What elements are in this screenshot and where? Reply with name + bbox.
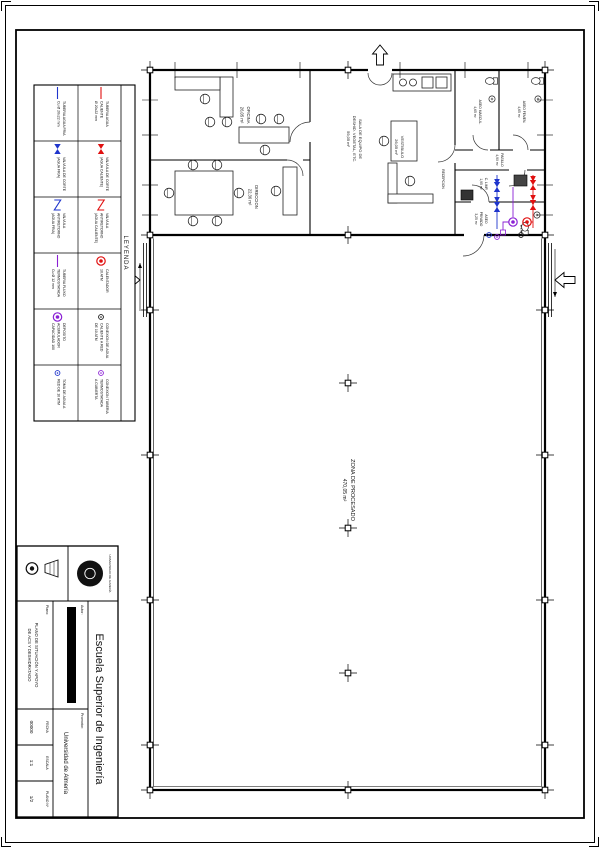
svg-text:Ø 20x22 mm: Ø 20x22 mm [94,101,98,121]
oficina-area: 26,05 m² [240,107,245,124]
chair-icon [164,188,174,198]
crop-mark [1,1,11,11]
chair-icon [188,160,198,170]
cold-valve-icon [494,202,500,212]
svg-text:CAPACIDAD 100: CAPACIDAD 100 [51,323,55,350]
promotor-name: Universidad de Almería [62,732,68,795]
svg-text:(AGUA CALIENTE): (AGUA CALIENTE) [100,157,104,187]
svg-text:TUBERIA FLUXO: TUBERIA FLUXO [62,269,66,297]
svg-text:CALIENTE: CALIENTE [100,101,104,119]
sliding-doors [138,243,557,317]
chair-icon [200,94,210,104]
sink-icon [489,96,495,102]
svg-text:10 ATM: 10 ATM [100,269,104,281]
accumulator-icon [509,218,517,226]
nave-area: 470,05 m² [341,479,347,502]
crop-mark [589,1,599,11]
hot-valve-icon [530,200,536,210]
aseo-fem-label: ASEO FEMEN. [522,101,526,124]
exit-arrow-icon [373,45,388,65]
chair-icon [188,216,198,226]
svg-text:A CUBIERTA: A CUBIERTA [94,379,98,400]
legend-title: LEYENDA [122,235,128,270]
sala-label: DESHID. VEGETAL, ETC. [352,116,357,163]
c-limp-area: 1,95 m² [479,178,483,190]
fecha-value: 00000 [29,721,34,734]
svg-text:(AGUA FRIA): (AGUA FRIA) [51,213,55,234]
hot-flow-arrow-icon [530,195,536,201]
plano-num-value: 1/2 [29,796,34,803]
svg-text:Cu Ø 12 mm: Cu Ø 12 mm [51,269,55,289]
cleaning-basin [514,175,527,186]
direccion-furniture [164,160,297,226]
pasillo-area: 4,90 m² [495,154,499,166]
svg-text:TUBERIA AGUA: TUBERIA AGUA [105,101,109,127]
redacted-author [67,607,76,703]
c-limp-label: C. LIMP. [484,178,488,191]
appliance [461,190,473,200]
university-logo-caption: UNIVERSIDAD DE ALMERÍA [108,555,112,593]
oficina-label: OFICINA [246,107,251,124]
chair-icon [222,117,232,127]
chair-icon [405,176,415,186]
svg-text:TERMOSTATADA: TERMOSTATADA [57,269,61,298]
aseo-fem-area: 4,65 m² [517,106,521,118]
chair-icon [271,186,281,196]
svg-text:CALENTADOR: CALENTADOR [105,269,109,293]
aseo-priv-label: ASEO [484,214,488,224]
chair-icon [212,216,222,226]
svg-text:Cu Ø 20x22 mm: Cu Ø 20x22 mm [57,101,61,127]
svg-text:CONEXION DE AGUA: CONEXION DE AGUA [105,323,109,359]
sala-label: SALA DE EQUIPO DE [358,119,363,159]
svg-text:ANTIRETORNO: ANTIRETORNO [57,213,61,239]
drawing-sheet: OFICINA 26,05 m² DIRECCION 22,36 m² SALA… [15,29,585,819]
oficina-furniture [175,77,289,155]
svg-text:ANTIRETORNO: ANTIRETORNO [100,213,104,239]
crop-mark [589,837,599,847]
chair-icon [256,114,266,124]
aseo-priv-label: PRIVADO [479,212,483,227]
title-block: UNIVERSIDAD DE ALMERÍA Escuela Superior … [17,546,118,817]
plano-title: PLANO DE SITUACIÓN Y APOYO [34,623,39,689]
pasillo-label: PASILLO [500,153,504,167]
aseo-masc-area: 4,65 m² [473,106,477,118]
plano-label: Plano: [45,605,49,615]
entry-arrow-icon [555,273,575,288]
svg-text:(AGUA FRIA): (AGUA FRIA) [57,157,61,178]
svg-text:VALVULA DE CORTE: VALVULA DE CORTE [105,157,109,192]
vestibulo-label: VESTIBULO [400,136,405,158]
svg-text:DEPOSITO: DEPOSITO [62,323,66,341]
svg-text:TUBERIA AGUA FRIA: TUBERIA AGUA FRIA [62,101,66,136]
svg-text:VALVULA: VALVULA [62,213,66,229]
plano-num-label: PLANO Nº [45,791,49,808]
autor-label: Autor: [80,605,84,615]
toilet-icon [531,78,543,85]
svg-text:(AGUA CALIENTE): (AGUA CALIENTE) [94,213,98,243]
aseo-priv-area: 3,25 m² [474,213,478,225]
floor-plan-svg: OFICINA 26,05 m² DIRECCION 22,36 m² SALA… [15,29,585,819]
svg-text:CALIENTE A RED: CALIENTE A RED [100,323,104,352]
svg-text:DE 10 ATM: DE 10 ATM [94,323,98,341]
sink-icon [535,96,541,102]
svg-text:TOMA DE AGUA A: TOMA DE AGUA A [62,379,66,409]
hot-water-installation [487,175,537,239]
svg-text:VALVULA: VALVULA [105,213,109,229]
room-labels: OFICINA 26,05 m² DIRECCION 22,36 m² SALA… [240,100,527,522]
legend: LEYENDA TUBERIA AGUACALIENTEØ 20x22 mm V… [34,85,135,421]
chair-icon [260,145,270,155]
escala-label: ESCALA [45,756,49,770]
promotor-label: Promotor: [80,713,84,729]
svg-text:ACUMULADOR: ACUMULADOR [57,323,61,348]
chair-icon [212,160,222,170]
chair-icon [274,114,284,124]
chair-icon [205,117,215,127]
sala-area: 59,05 m² [346,131,351,147]
crop-mark [1,837,11,847]
svg-text:CONEXION TUBERIA: CONEXION TUBERIA [105,379,109,414]
direccion-label: DIRECCION [254,185,259,209]
svg-text:VALVULA DE CORTE: VALVULA DE CORTE [62,157,66,192]
svg-text:TERMOSTATADA: TERMOSTATADA [100,379,104,408]
drawing-page: OFICINA 26,05 m² DIRECCION 22,36 m² SALA… [0,0,600,848]
plano-title: DE ACS Y DESHIDRATADO [27,629,32,683]
direccion-area: 22,36 m² [248,189,253,206]
nave-label: ZONA DE PROCESADO [349,459,355,522]
school-name: Escuela Superior de Ingeniería [93,633,105,785]
toilet-icon [485,78,497,85]
svg-text:RED DE 10 ATM: RED DE 10 ATM [57,379,61,405]
escala-value: 1:1 [29,760,34,767]
aseo-masc-label: ASEO MASCUL. [478,100,482,125]
recepcion-label: RECEPCION [441,169,445,189]
fecha-label: FECHA [45,721,49,733]
chair-icon [234,188,244,198]
vestibulo-area: 26,05 m² [394,139,399,155]
chair-icon [379,136,389,146]
